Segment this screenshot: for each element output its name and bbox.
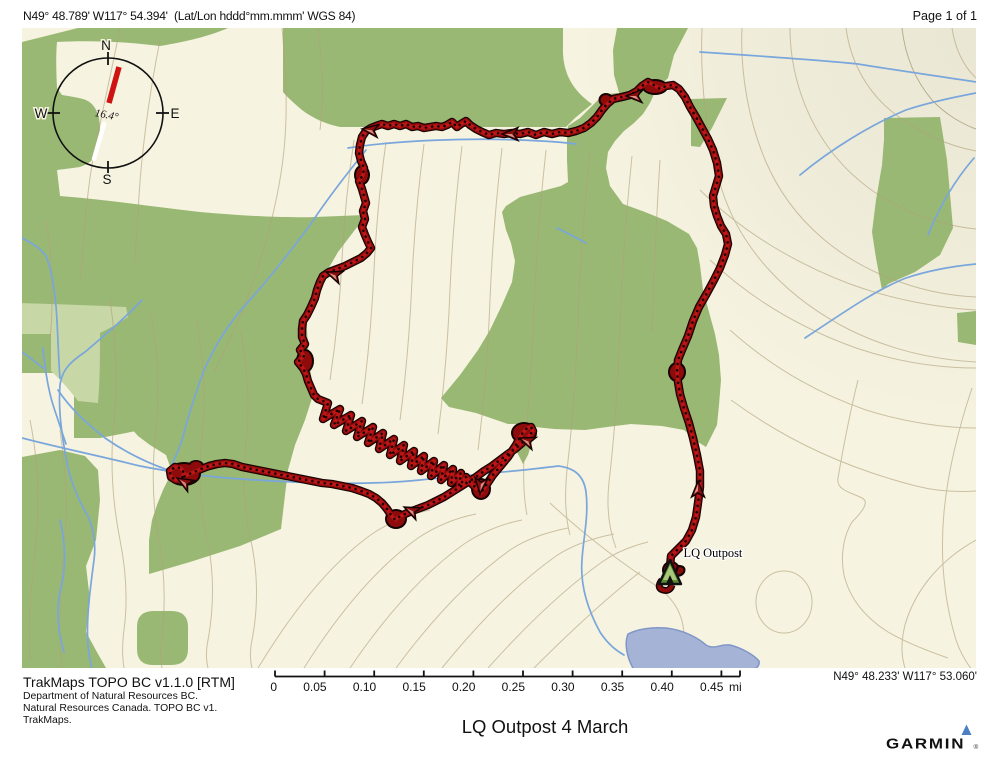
- svg-text:LQ Outpost: LQ Outpost: [684, 546, 743, 560]
- svg-text:0.45: 0.45: [700, 680, 724, 694]
- svg-text:TrakMaps TOPO BC v1.1.0 [RTM]: TrakMaps TOPO BC v1.1.0 [RTM]: [23, 674, 235, 690]
- svg-text:W: W: [35, 106, 48, 121]
- svg-text:0.05: 0.05: [303, 680, 327, 694]
- svg-text:S: S: [102, 172, 111, 187]
- svg-text:0.40: 0.40: [650, 680, 674, 694]
- svg-text:Natural Resources Canada. TOPO: Natural Resources Canada. TOPO BC v1.: [23, 703, 217, 714]
- svg-text:0.30: 0.30: [551, 680, 575, 694]
- svg-text:GARMIN: GARMIN: [886, 737, 965, 753]
- svg-text:N: N: [101, 38, 111, 53]
- svg-text:Department of Natural Resource: Department of Natural Resources BC.: [23, 691, 198, 702]
- svg-text:Page 1 of 1: Page 1 of 1: [913, 9, 977, 23]
- svg-text:0.10: 0.10: [353, 680, 377, 694]
- svg-text:LQ Outpost 4 March: LQ Outpost 4 March: [462, 716, 629, 737]
- svg-text:TrakMaps.: TrakMaps.: [23, 715, 72, 726]
- svg-text:E: E: [170, 106, 179, 121]
- svg-text:0: 0: [270, 680, 277, 694]
- svg-text:mi: mi: [729, 680, 742, 694]
- svg-text:0.25: 0.25: [502, 680, 526, 694]
- svg-text:®: ®: [974, 743, 979, 751]
- svg-text:0.20: 0.20: [452, 680, 476, 694]
- svg-text:N49° 48.789' W117° 54.394' (L: N49° 48.789' W117° 54.394' (Lat/Lon hddd…: [23, 9, 356, 23]
- svg-text:0.15: 0.15: [402, 680, 426, 694]
- svg-text:0.35: 0.35: [601, 680, 625, 694]
- svg-text:N49° 48.233' W117° 53.060': N49° 48.233' W117° 53.060': [833, 671, 977, 683]
